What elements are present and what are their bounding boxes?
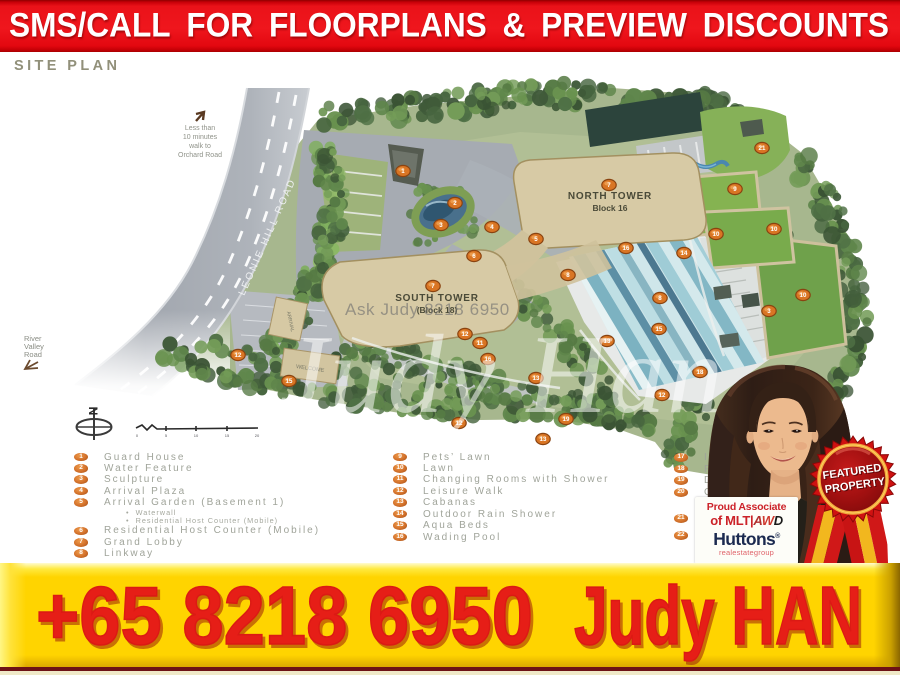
svg-text:SMS/CALL FOR FLOORPLANS & PREV: SMS/CALL FOR FLOORPLANS & PREVIEW DISCOU… — [9, 7, 889, 45]
svg-text:Judy HAN: Judy HAN — [574, 569, 862, 662]
svg-text:+65 8218 6950: +65 8218 6950 — [36, 569, 533, 662]
